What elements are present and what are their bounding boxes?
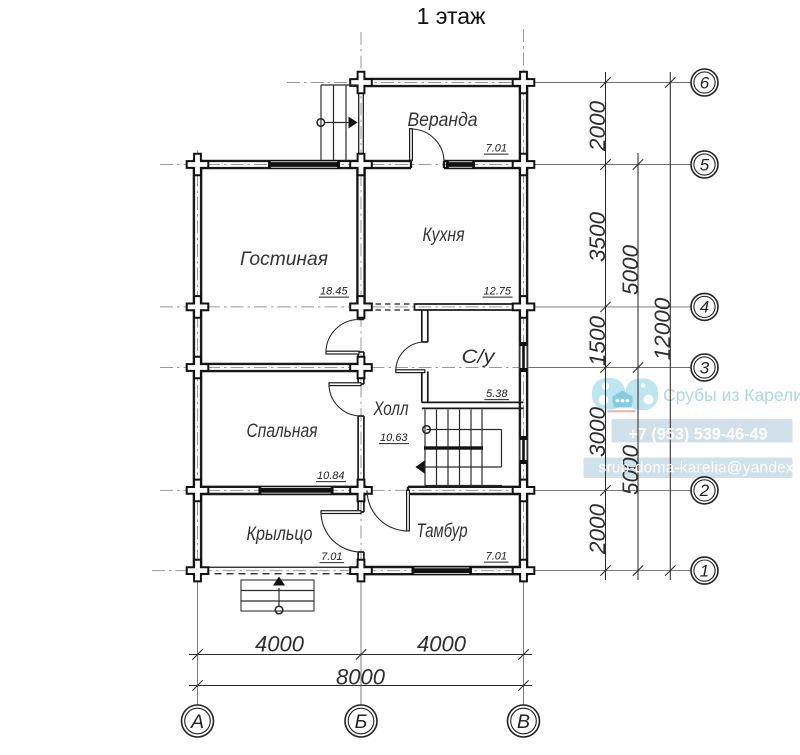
svg-text:3500: 3500 <box>585 211 610 262</box>
svg-text:5: 5 <box>700 155 710 174</box>
svg-text:10.63: 10.63 <box>380 432 408 444</box>
svg-text:Кухня: Кухня <box>423 225 465 246</box>
svg-text:Крыльцо: Крыльцо <box>247 524 313 545</box>
svg-text:+7 (953) 539-46-49: +7 (953) 539-46-49 <box>628 426 767 444</box>
svg-text:2000: 2000 <box>585 100 610 152</box>
svg-text:8000: 8000 <box>336 665 386 690</box>
svg-text:А: А <box>190 711 204 733</box>
svg-text:Гостиная: Гостиная <box>240 249 328 270</box>
svg-text:1 этаж: 1 этаж <box>417 3 486 29</box>
svg-text:1: 1 <box>700 561 709 580</box>
svg-text:7.01: 7.01 <box>486 143 507 155</box>
svg-text:4000: 4000 <box>417 632 467 657</box>
svg-text:10.84: 10.84 <box>317 470 345 482</box>
svg-text:4000: 4000 <box>255 632 305 657</box>
svg-text:Б: Б <box>355 711 368 733</box>
svg-text:В: В <box>517 711 530 733</box>
svg-text:12000: 12000 <box>650 297 675 360</box>
svg-text:srub-doma-karelia@yandex.ru: srub-doma-karelia@yandex.ru <box>599 460 800 477</box>
svg-text:7.01: 7.01 <box>321 551 342 563</box>
svg-text:7.01: 7.01 <box>486 551 507 563</box>
svg-text:2: 2 <box>699 481 710 500</box>
svg-text:Холл: Холл <box>373 399 409 420</box>
svg-text:Веранда: Веранда <box>408 110 478 131</box>
svg-text:3000: 3000 <box>585 406 610 457</box>
svg-text:2000: 2000 <box>585 503 610 555</box>
svg-text:С/у: С/у <box>462 347 497 368</box>
svg-text:5000: 5000 <box>618 244 643 295</box>
svg-text:1500: 1500 <box>585 315 610 366</box>
svg-text:Тамбур: Тамбур <box>417 521 468 542</box>
svg-text:18.45: 18.45 <box>320 286 348 298</box>
svg-text:Срубы из Карелии: Срубы из Карелии <box>663 385 800 405</box>
svg-text:5.38: 5.38 <box>486 388 508 400</box>
svg-text:3: 3 <box>700 358 710 377</box>
svg-text:4: 4 <box>700 298 709 317</box>
svg-text:6: 6 <box>700 73 710 92</box>
svg-text:12.75: 12.75 <box>483 286 511 298</box>
svg-text:Спальная: Спальная <box>247 421 318 442</box>
